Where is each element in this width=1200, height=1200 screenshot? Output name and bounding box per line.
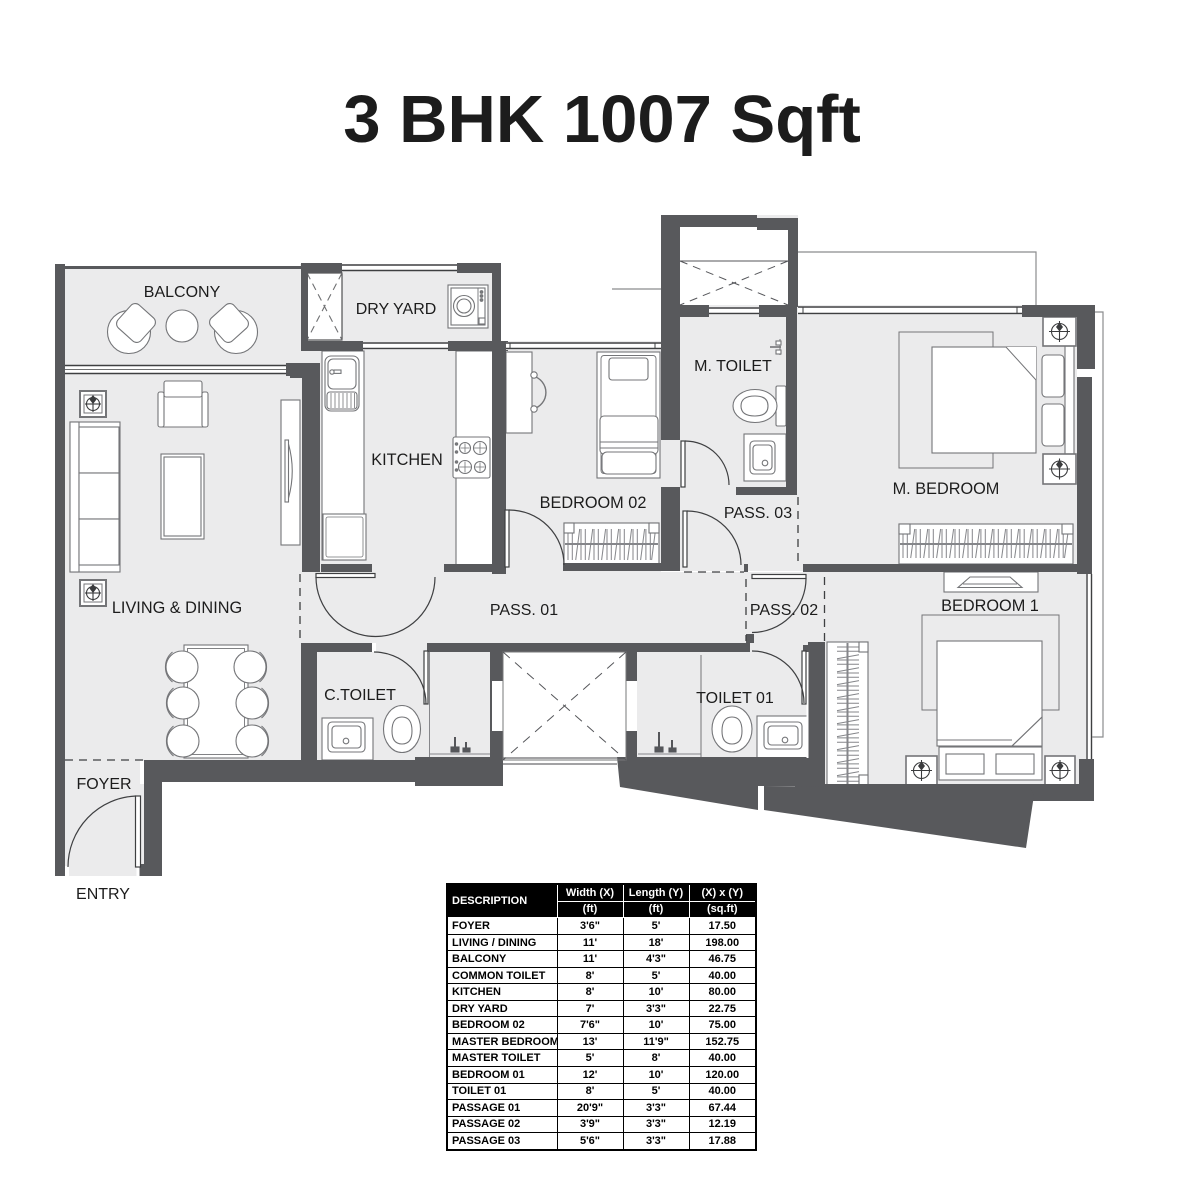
svg-text:PASS. 01: PASS. 01	[490, 602, 558, 619]
svg-text:DRY YARD: DRY YARD	[356, 301, 437, 318]
svg-text:LIVING & DINING: LIVING & DINING	[112, 599, 242, 617]
svg-text:TOILET 01: TOILET 01	[696, 690, 774, 707]
svg-text:C.TOILET: C.TOILET	[324, 687, 396, 704]
svg-text:BEDROOM 1: BEDROOM 1	[941, 597, 1039, 615]
svg-text:PASS. 02: PASS. 02	[750, 602, 818, 619]
svg-text:ENTRY: ENTRY	[76, 886, 130, 903]
svg-text:FOYER: FOYER	[76, 776, 131, 793]
svg-text:PASS. 03: PASS. 03	[724, 505, 792, 522]
svg-text:BEDROOM 02: BEDROOM 02	[540, 494, 647, 512]
svg-text:BALCONY: BALCONY	[144, 284, 221, 301]
svg-text:KITCHEN: KITCHEN	[371, 451, 442, 469]
svg-text:M. BEDROOM: M. BEDROOM	[893, 480, 1000, 498]
svg-text:M. TOILET: M. TOILET	[694, 358, 772, 375]
svg-text:3 BHK 1007 Sqft: 3 BHK 1007 Sqft	[343, 82, 861, 157]
